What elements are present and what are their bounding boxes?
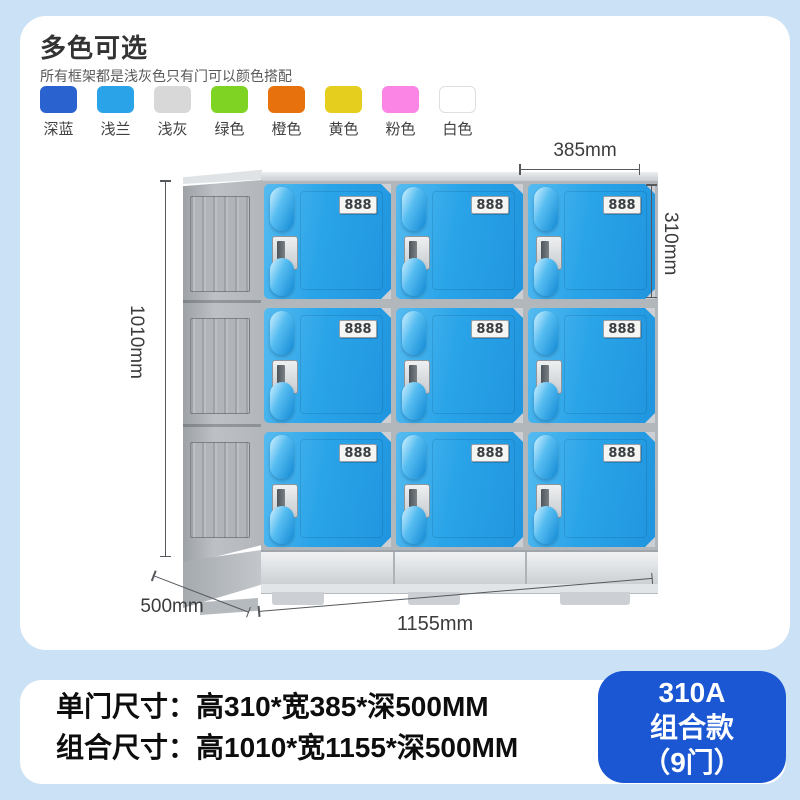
corner-cap-icon	[513, 537, 523, 547]
hinge-bump-icon	[270, 258, 294, 296]
swatch-label: 粉色	[385, 118, 415, 139]
spec-combined: 组合尺寸：高1010*宽1155*深500MM	[56, 729, 518, 767]
badge-model: 310A	[659, 675, 726, 710]
door-number-plate: 888	[471, 444, 509, 462]
corner-cap-icon	[513, 413, 523, 423]
dim-door-width-label: 385mm	[525, 140, 645, 162]
hinge-bump-icon	[270, 311, 294, 355]
door-number-plate: 888	[339, 320, 377, 338]
door-number-plate: 888	[603, 320, 641, 338]
hinge-bump-icon	[534, 187, 558, 231]
locker-door: 888	[396, 432, 523, 547]
corner-cap-icon	[645, 413, 655, 423]
badge-type: 组合款	[650, 710, 734, 745]
door-number-plate: 888	[603, 444, 641, 462]
corner-cap-icon	[381, 308, 391, 318]
swatch-label: 深蓝	[43, 118, 73, 139]
cabinet-foot	[560, 592, 630, 605]
swatch-label: 白色	[442, 118, 472, 139]
cabinet-foot	[272, 592, 324, 605]
hinge-bump-icon	[534, 382, 558, 420]
dim-door-height-line	[651, 184, 652, 298]
dim-total-width-label: 1155mm	[375, 613, 495, 636]
locker-door: 888	[396, 308, 523, 423]
swatch-label: 绿色	[214, 118, 244, 139]
dim-depth-label: 500mm	[132, 596, 212, 618]
locker-door: 888	[528, 184, 655, 299]
swatch-green	[211, 86, 248, 113]
corner-cap-icon	[381, 537, 391, 547]
corner-cap-icon	[381, 432, 391, 442]
corner-cap-icon	[645, 308, 655, 318]
cabinet-base-front	[261, 550, 658, 584]
swatch-orange	[268, 86, 305, 113]
door-number-plate: 888	[603, 196, 641, 214]
color-option-orange: 橙色	[268, 86, 305, 139]
side-rib-panel	[190, 442, 250, 538]
hinge-bump-icon	[270, 506, 294, 544]
color-option-deep-blue: 深蓝	[40, 86, 77, 139]
base-divider	[525, 552, 527, 584]
door-number-plate: 888	[471, 196, 509, 214]
hinge-bump-icon	[402, 506, 426, 544]
hinge-bump-icon	[534, 258, 558, 296]
hinge-bump-icon	[534, 506, 558, 544]
swatch-light-blue	[97, 86, 134, 113]
locker-door: 888	[528, 308, 655, 423]
spec-single-door: 单门尺寸：高310*宽385*深500MM	[56, 688, 518, 726]
corner-cap-icon	[645, 432, 655, 442]
colors-subtitle: 所有框架都是浅灰色只有门可以颜色搭配	[40, 66, 292, 86]
swatch-label: 浅灰	[157, 118, 187, 139]
base-divider	[393, 552, 395, 584]
dim-total-height-label: 1010mm	[131, 305, 147, 377]
hinge-bump-icon	[270, 187, 294, 231]
locker-door-grid: 888 888 888 888 888 888	[261, 181, 658, 550]
swatch-deep-blue	[40, 86, 77, 113]
corner-cap-icon	[381, 184, 391, 194]
color-swatch-row: 深蓝 浅兰 浅灰 绿色 橙色 黄色 粉色 白色	[40, 86, 476, 139]
swatch-yellow	[325, 86, 362, 113]
hinge-bump-icon	[402, 435, 426, 479]
corner-cap-icon	[381, 413, 391, 423]
corner-cap-icon	[513, 289, 523, 299]
corner-cap-icon	[513, 432, 523, 442]
dim-door-width-line	[519, 169, 640, 170]
side-rib-panel	[190, 196, 250, 292]
hinge-bump-icon	[402, 382, 426, 420]
locker-door: 888	[396, 184, 523, 299]
locker-door: 888	[528, 432, 655, 547]
colors-title: 多色可选	[40, 28, 148, 65]
specs-text: 单门尺寸：高310*宽385*深500MM 组合尺寸：高1010*宽1155*深…	[56, 688, 518, 767]
swatch-label: 浅兰	[100, 118, 130, 139]
swatch-white	[439, 86, 476, 113]
corner-cap-icon	[381, 289, 391, 299]
swatch-light-gray	[154, 86, 191, 113]
corner-cap-icon	[513, 184, 523, 194]
color-option-yellow: 黄色	[325, 86, 362, 139]
swatch-label: 橙色	[271, 118, 301, 139]
corner-cap-icon	[513, 308, 523, 318]
hinge-bump-icon	[270, 382, 294, 420]
hinge-bump-icon	[270, 435, 294, 479]
locker-door: 888	[264, 432, 391, 547]
door-number-plate: 888	[471, 320, 509, 338]
swatch-label: 黄色	[328, 118, 358, 139]
hinge-bump-icon	[402, 311, 426, 355]
locker-door: 888	[264, 184, 391, 299]
swatch-pink	[382, 86, 419, 113]
color-option-light-blue: 浅兰	[97, 86, 134, 139]
hinge-bump-icon	[534, 435, 558, 479]
cabinet-side-panel	[183, 180, 262, 565]
hinge-bump-icon	[534, 311, 558, 355]
color-option-pink: 粉色	[382, 86, 419, 139]
hinge-bump-icon	[402, 258, 426, 296]
model-badge: 310A 组合款 （9门）	[598, 671, 786, 783]
dim-total-height-line	[165, 180, 166, 557]
side-seam	[183, 300, 262, 303]
side-seam	[183, 424, 262, 427]
corner-cap-icon	[645, 537, 655, 547]
color-option-green: 绿色	[211, 86, 248, 139]
locker-door: 888	[264, 308, 391, 423]
product-infographic: { "colors_section": { "title": "多色可选", "…	[0, 0, 800, 800]
color-option-light-gray: 浅灰	[154, 86, 191, 139]
badge-doors: （9门）	[642, 745, 742, 780]
color-option-white: 白色	[439, 86, 476, 139]
corner-cap-icon	[645, 184, 655, 194]
door-number-plate: 888	[339, 196, 377, 214]
hinge-bump-icon	[402, 187, 426, 231]
dim-door-height-label: 310mm	[665, 212, 681, 274]
door-number-plate: 888	[339, 444, 377, 462]
side-rib-panel	[190, 318, 250, 414]
